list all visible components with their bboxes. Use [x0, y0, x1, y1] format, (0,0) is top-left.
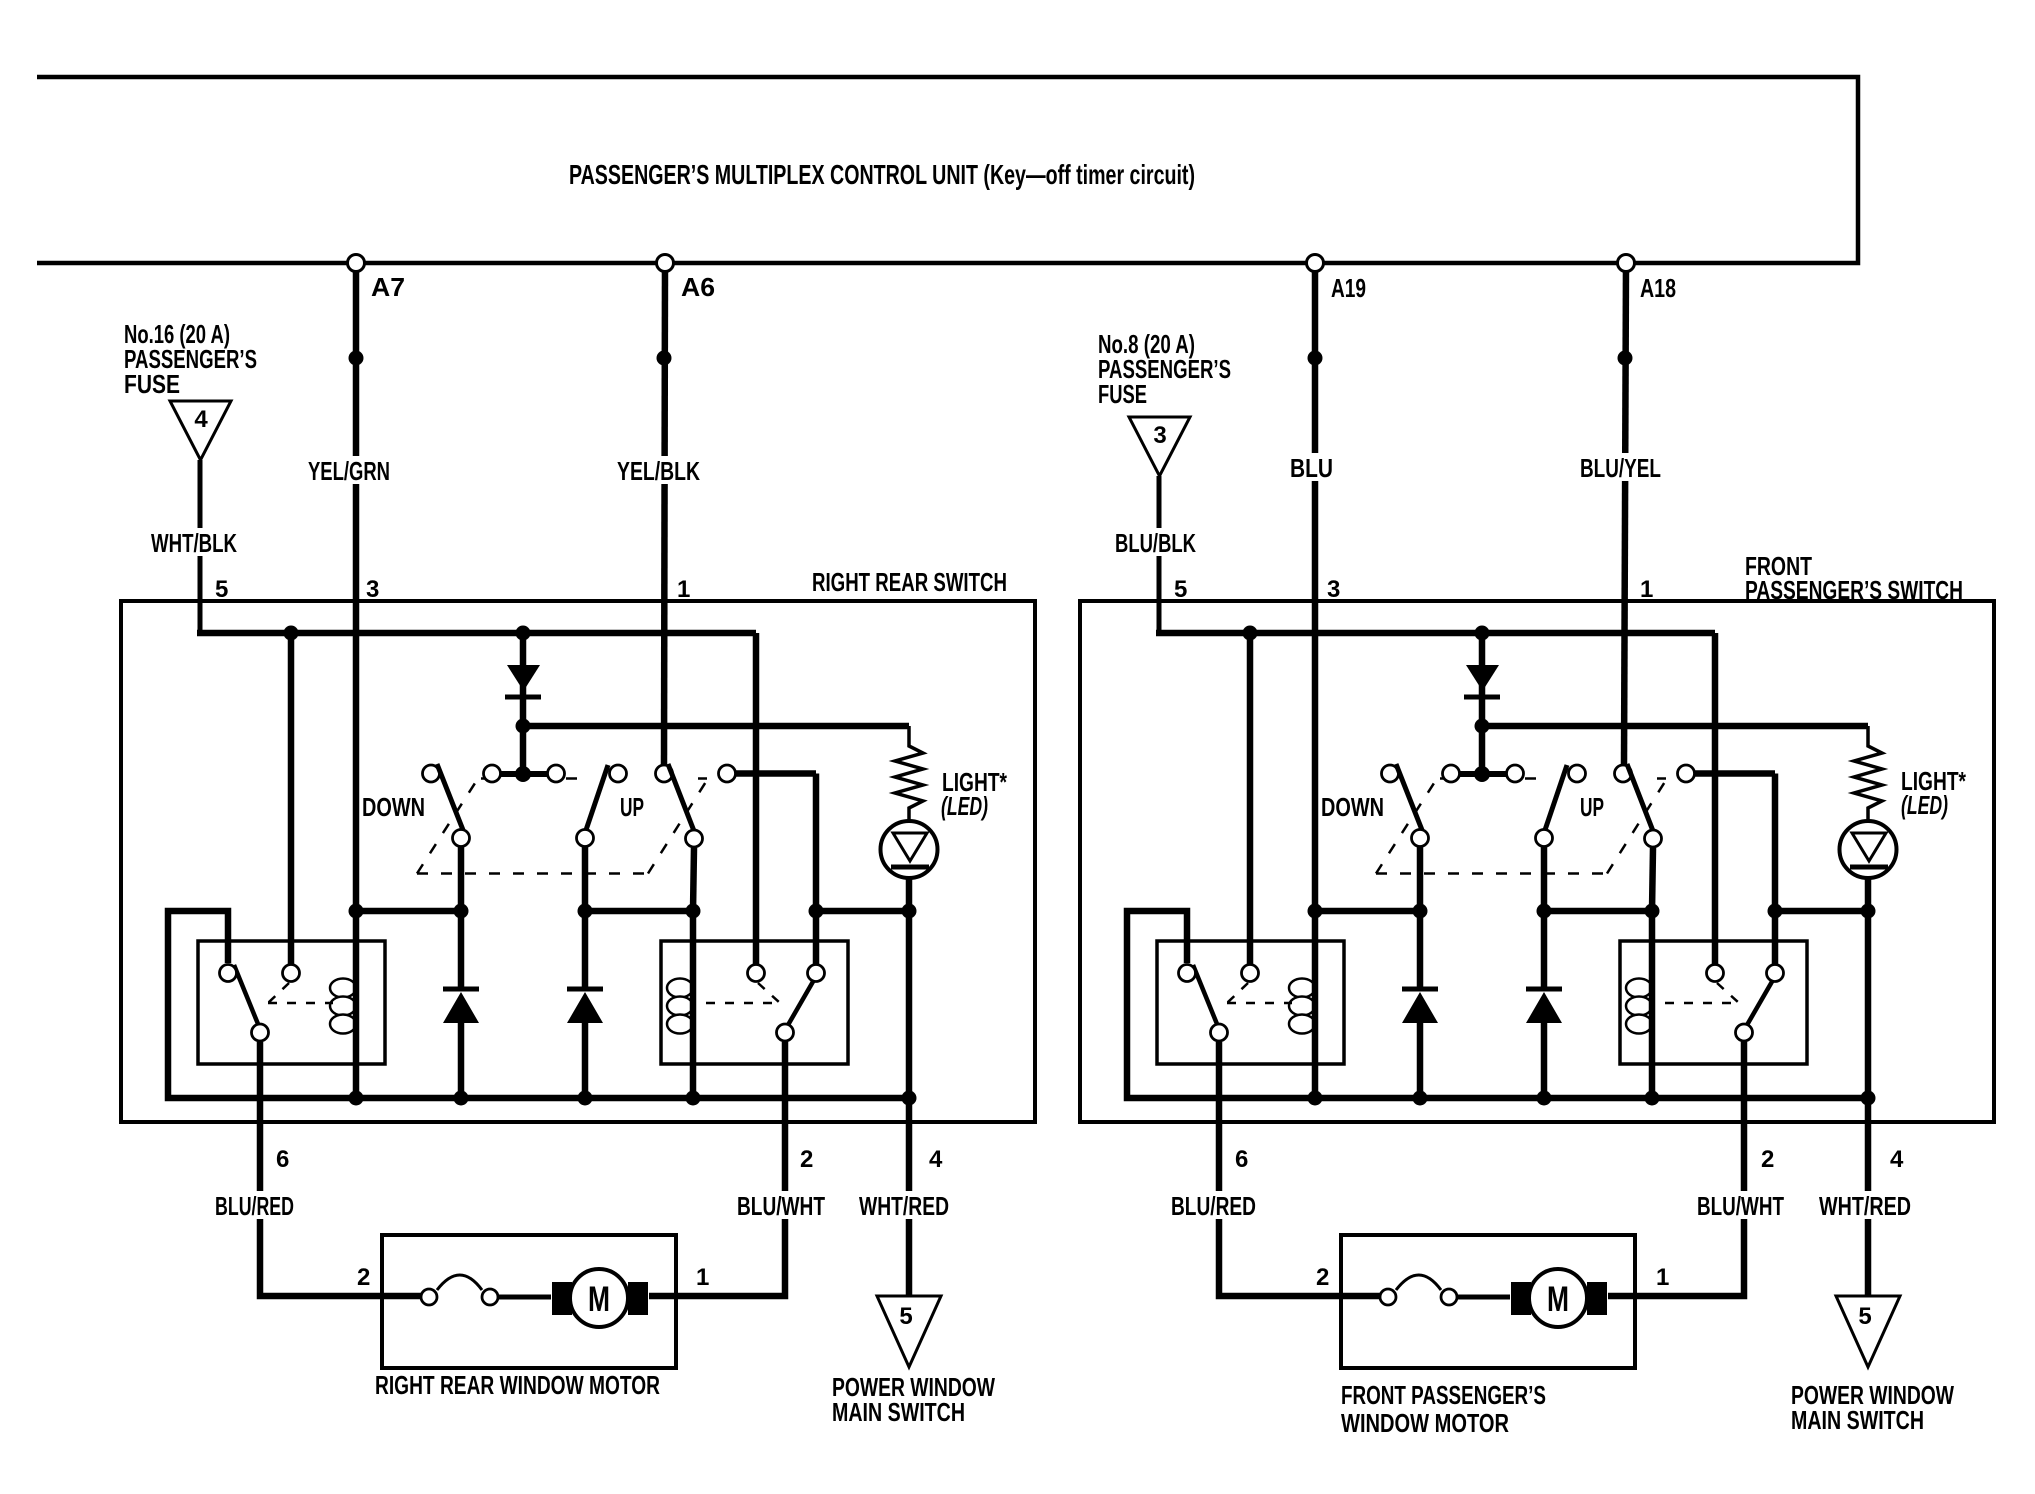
svg-text:5: 5 [899, 1303, 912, 1330]
svg-text:4: 4 [929, 1146, 943, 1173]
svg-text:(LED): (LED) [1901, 790, 1948, 820]
svg-text:1: 1 [1656, 1264, 1669, 1291]
svg-text:M: M [588, 1280, 610, 1319]
svg-text:BLU/RED: BLU/RED [215, 1191, 294, 1221]
svg-text:FUSE: FUSE [124, 369, 180, 399]
svg-text:BLU/RED: BLU/RED [1171, 1191, 1256, 1221]
svg-text:5: 5 [1858, 1303, 1871, 1330]
svg-text:WHT/RED: WHT/RED [1819, 1191, 1911, 1221]
svg-text:BLU: BLU [1290, 453, 1333, 483]
svg-text:MAIN SWITCH: MAIN SWITCH [832, 1397, 965, 1427]
svg-text:2: 2 [800, 1146, 813, 1173]
svg-text:5: 5 [215, 576, 228, 603]
svg-text:A19: A19 [1331, 273, 1366, 303]
svg-text:UP: UP [1580, 792, 1604, 822]
svg-text:BLU/YEL: BLU/YEL [1580, 453, 1661, 483]
svg-text:1: 1 [696, 1264, 709, 1291]
svg-text:FRONT PASSENGER’S: FRONT PASSENGER’S [1341, 1380, 1546, 1410]
svg-text:A7: A7 [371, 272, 405, 302]
svg-text:3: 3 [366, 576, 379, 603]
svg-text:MAIN SWITCH: MAIN SWITCH [1791, 1405, 1924, 1435]
svg-text:RIGHT REAR WINDOW MOTOR: RIGHT REAR WINDOW MOTOR [375, 1370, 660, 1400]
svg-text:6: 6 [1235, 1146, 1248, 1173]
svg-text:YEL/BLK: YEL/BLK [617, 456, 700, 486]
svg-text:WHT/RED: WHT/RED [859, 1191, 949, 1221]
svg-text:(LED): (LED) [941, 791, 988, 821]
svg-text:YEL/GRN: YEL/GRN [308, 456, 390, 486]
svg-text:2: 2 [357, 1264, 370, 1291]
svg-text:WINDOW MOTOR: WINDOW MOTOR [1341, 1408, 1509, 1438]
svg-text:PASSENGER’S MULTIPLEX CONTROL: PASSENGER’S MULTIPLEX CONTROL UNIT (Key—… [569, 159, 1195, 190]
svg-text:3: 3 [1327, 576, 1340, 603]
svg-text:2: 2 [1761, 1146, 1774, 1173]
svg-text:RIGHT REAR SWITCH: RIGHT REAR SWITCH [812, 567, 1007, 597]
svg-text:M: M [1547, 1280, 1569, 1319]
svg-text:DOWN: DOWN [362, 792, 425, 822]
svg-text:A6: A6 [681, 272, 715, 302]
svg-text:5: 5 [1174, 576, 1187, 603]
svg-text:4: 4 [194, 406, 208, 433]
svg-text:3: 3 [1153, 422, 1166, 449]
svg-text:2: 2 [1316, 1264, 1329, 1291]
svg-text:BLU/BLK: BLU/BLK [1115, 528, 1196, 558]
svg-text:6: 6 [276, 1146, 289, 1173]
svg-text:FUSE: FUSE [1098, 379, 1147, 409]
svg-text:DOWN: DOWN [1321, 792, 1384, 822]
svg-text:A18: A18 [1640, 273, 1676, 303]
svg-text:WHT/BLK: WHT/BLK [151, 528, 237, 558]
svg-text:4: 4 [1890, 1146, 1904, 1173]
svg-text:BLU/WHT: BLU/WHT [737, 1191, 825, 1221]
svg-text:BLU/WHT: BLU/WHT [1697, 1191, 1784, 1221]
svg-text:UP: UP [620, 792, 644, 822]
svg-text:1: 1 [677, 576, 690, 603]
svg-text:1: 1 [1640, 576, 1653, 603]
